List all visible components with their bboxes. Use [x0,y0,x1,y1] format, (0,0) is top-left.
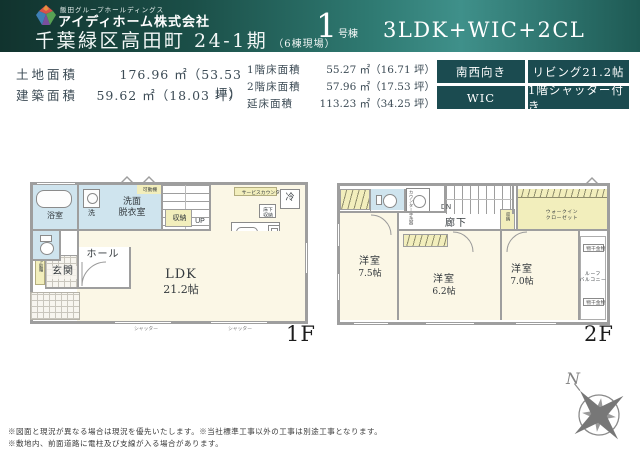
spec-row-total: 延床面積 113.23 ㎡（34.25 坪） [247,96,435,113]
area-specs-right: 1階床面積 55.27 ㎡（16.71 坪） 2階床面積 57.96 ㎡（17.… [247,62,435,113]
door-arc-icon [452,231,474,253]
iida-group-logo-icon [36,5,56,27]
spec-value: 113.23 ㎡（34.25 坪） [309,96,435,111]
spec-row-site: 土地面積 176.96 ㎡（53.53 坪） [16,64,242,85]
hand-wash-basin-icon [413,195,426,208]
bedroom2-size: 6.2帖 [422,287,466,298]
floor-label-2f: 2F [584,322,614,346]
door-arc-icon [506,231,528,253]
unit-number: 1号棟 [316,6,358,45]
closet-room2 [403,234,448,247]
badge-living: リビング21.2帖 [528,60,629,83]
ldk-name: LDK [151,267,211,283]
badge-wic: WIC [437,86,525,109]
room-label-hall: ホール [81,249,125,262]
room-label-genkan: 玄関 [47,266,79,279]
spec-label: 2階床面積 [247,79,309,94]
floorplan-2f: カウンター手洗器 DN 廊下 収納 ウォークイン クローゼット 洋室 7.5帖 … [337,183,610,325]
spec-label: 建築面積 [16,85,94,104]
toilet-bowl-icon [40,242,54,255]
spec-value: 59.62 ㎡（18.03 坪） [94,85,242,104]
room-label-bedroom1: 洋室 7.5帖 [348,256,392,280]
bedroom1-size: 7.5帖 [348,269,392,280]
label-roof-balcony: ルーフ バルコニー [578,271,608,283]
room-label-washroom: 洗面 脱衣室 [109,197,155,220]
spec-value: 57.96 ㎡（17.53 坪） [309,79,435,94]
feature-badges: 南西向き リビング21.2帖 WIC 1階シャッター付き [437,60,629,109]
room-label-ldk: LDK 21.2帖 [151,267,211,297]
compass-north-label: N [565,369,581,388]
room-toilet-2f [371,189,404,210]
door-arc-icon [370,214,392,236]
flyer-page: 飯田グループホールディングス アイディホーム株式会社 千葉緑区高田町 24-1期… [0,0,640,452]
label-counter-sink: カウンター手洗器 [408,190,414,225]
spec-label: 1階床面積 [247,62,309,77]
bedroom1-name: 洋室 [348,256,392,269]
spec-value: 55.27 ㎡（16.71 坪） [309,62,435,77]
unit-number-value: 1 [316,6,337,45]
label-storage-2f: 収納 [505,212,511,221]
bathtub-icon [36,190,72,208]
room-label-wic: ウォークイン クローゼット [544,209,580,221]
label-shutter-1: シャッター [131,326,161,332]
closet-room1 [340,189,370,210]
laundry-bracket-top: 物干金物 [583,244,604,252]
entrance-porch [30,292,80,320]
laundry-bracket-bottom: 物干金物 [583,298,604,306]
label-service-counter: サービスカウンター [242,190,271,196]
spec-label: 土地面積 [16,64,94,83]
storage-1f: 収納 [165,209,192,227]
door-arc-icon [81,261,107,287]
ldk-size: 21.2帖 [151,283,211,297]
room-toilet-1f [33,231,59,259]
badge-shutter: 1階シャッター付き [528,86,629,109]
label-monohoshi-top: 物干金物 [586,246,602,252]
service-counter: サービスカウンター [234,187,277,196]
label-fridge: 冷 [281,193,299,204]
spec-row-building: 建築面積 59.62 ㎡（18.03 坪） [16,85,242,106]
spec-label: 延床面積 [247,96,309,111]
label-underfloor: 床下 収納 [261,208,274,219]
walk-in-closet: ウォークイン クローゼット [518,189,607,229]
label-monohoshi-bottom: 物干金物 [586,300,602,306]
disclaimer-notes: ※図面と現況が異なる場合は現況を優先いたします。※当社標準工事以外の工事は別途工… [8,426,628,449]
label-shutter-2: シャッター [225,326,255,332]
vent-icon [143,176,155,182]
spec-row-floor1: 1階床面積 55.27 ㎡（16.71 坪） [247,62,435,79]
room-label-washer: 洗 [84,209,99,218]
spec-row-floor2: 2階床面積 57.96 ㎡（17.53 坪） [247,79,435,96]
shoe-box: 下駄箱 [35,257,45,285]
toilet-tank-icon [40,235,52,242]
room-label-bedroom3: 洋室 7.0帖 [500,264,544,288]
vent-icon [586,177,598,183]
plan-type: 3LDK+WIC+2CL [383,18,585,42]
label-movable-shelf: 可動棚 [142,187,158,193]
property-title-text: 千葉緑区高田町 24-1期 [35,30,268,52]
label-up: UP [191,218,209,227]
washing-machine-icon [83,189,100,208]
underfloor-storage: 床下 収納 [259,204,276,218]
bedroom3-size: 7.0帖 [500,277,544,288]
unit-number-suffix: 号棟 [338,29,358,40]
floor-label-1f: 1F [286,322,316,346]
toilet-bowl-icon [383,194,397,208]
header-banner: 飯田グループホールディングス アイディホーム株式会社 千葉緑区高田町 24-1期… [0,0,640,52]
room-bath: 浴室 [33,185,77,229]
disclaimer-line-1: ※図面と現況が異なる場合は現況を優先いたします。※当社標準工事以外の工事は別途工… [8,426,628,438]
movable-shelf: 可動棚 [137,185,163,194]
vent-icon [121,176,133,182]
property-title: 千葉緑区高田町 24-1期（6棟現場） [35,26,336,53]
area-specs-left: 土地面積 176.96 ㎡（53.53 坪） 建築面積 59.62 ㎡（18.0… [16,64,242,106]
toilet-tank-icon [376,195,382,205]
badge-facing: 南西向き [437,60,525,83]
room-label-bath: 浴室 [37,211,73,221]
bedroom3-name: 洋室 [500,264,544,277]
counter-sink: カウンター手洗器 [406,188,430,212]
disclaimer-line-2: ※敷地内、前面道路に電柱及び支線が入る場合があります。 [8,438,628,450]
bedroom2-name: 洋室 [422,274,466,287]
label-storage-1f: 収納 [166,214,193,223]
room-label-bedroom2: 洋室 6.2帖 [422,274,466,298]
fridge-space: 冷 [280,189,300,209]
